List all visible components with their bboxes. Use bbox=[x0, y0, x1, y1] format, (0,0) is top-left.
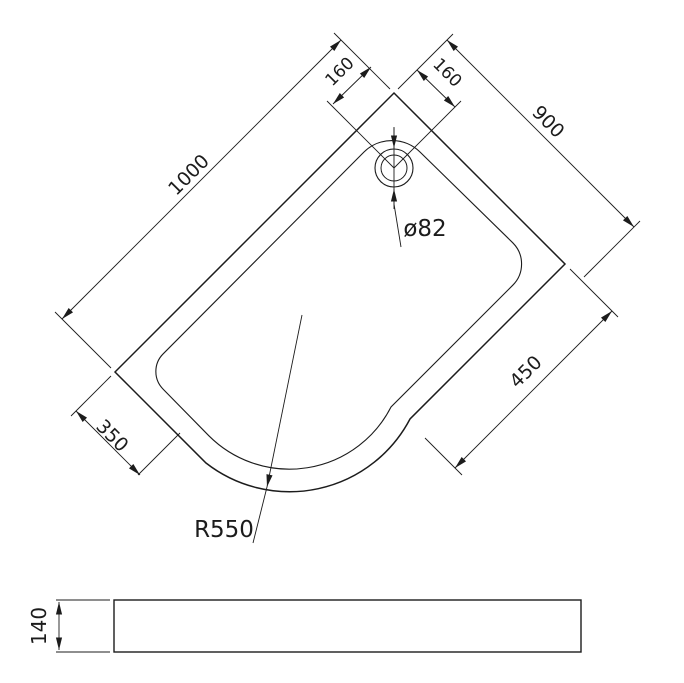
side-view-outline bbox=[114, 600, 581, 652]
dim-450-ext-tangent bbox=[425, 438, 462, 475]
dim-drain-leader bbox=[394, 204, 401, 247]
dim-350-label: 350 bbox=[91, 415, 132, 456]
dim-900-label: 900 bbox=[527, 101, 568, 142]
dim-r550-leader-upper bbox=[267, 315, 302, 487]
dim-350-ext-tangent bbox=[138, 433, 180, 475]
tray-outer-outline bbox=[115, 93, 565, 492]
dim-drain-label: ø82 bbox=[403, 216, 446, 242]
dim-900-ext-corner bbox=[584, 221, 640, 277]
dim-160-right-ext-drain bbox=[394, 101, 461, 168]
shower-tray-drawing: 1000 900 160 160 450 350 R550 ø82 140 bbox=[0, 0, 684, 683]
plan-view: 1000 900 160 160 450 350 R550 ø82 bbox=[55, 33, 640, 543]
dim-900-line bbox=[447, 40, 634, 227]
dim-r550-leader bbox=[253, 315, 302, 543]
dim-r550-label: R550 bbox=[194, 517, 254, 543]
dim-450-line bbox=[455, 311, 612, 468]
technical-drawing-canvas: 1000 900 160 160 450 350 R550 ø82 140 bbox=[0, 0, 684, 683]
dim-140 bbox=[56, 600, 110, 652]
dim-1000-line bbox=[62, 40, 341, 319]
dim-r550-leader-lower bbox=[253, 487, 267, 543]
dim-160-left-ext-drain bbox=[327, 101, 394, 168]
dim-1000-ext-left bbox=[55, 312, 111, 368]
dim-450-label: 450 bbox=[505, 351, 546, 392]
dim-450-ext-corner bbox=[570, 269, 618, 317]
tray-inner-rim bbox=[156, 141, 522, 470]
dim-140-label: 140 bbox=[27, 607, 51, 645]
dim-350-ext-corner bbox=[71, 376, 111, 416]
side-view: 140 bbox=[27, 600, 581, 652]
dim-350 bbox=[71, 376, 180, 475]
